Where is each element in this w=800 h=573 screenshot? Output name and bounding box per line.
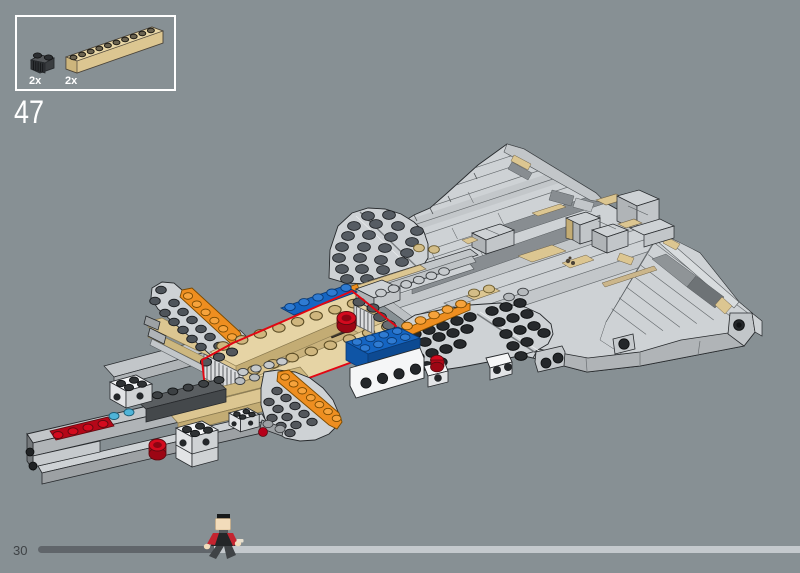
svg-text:30: 30 bbox=[13, 543, 27, 558]
svg-text:47: 47 bbox=[14, 94, 44, 130]
svg-text:2x: 2x bbox=[29, 75, 42, 87]
svg-text:2x: 2x bbox=[65, 75, 78, 87]
